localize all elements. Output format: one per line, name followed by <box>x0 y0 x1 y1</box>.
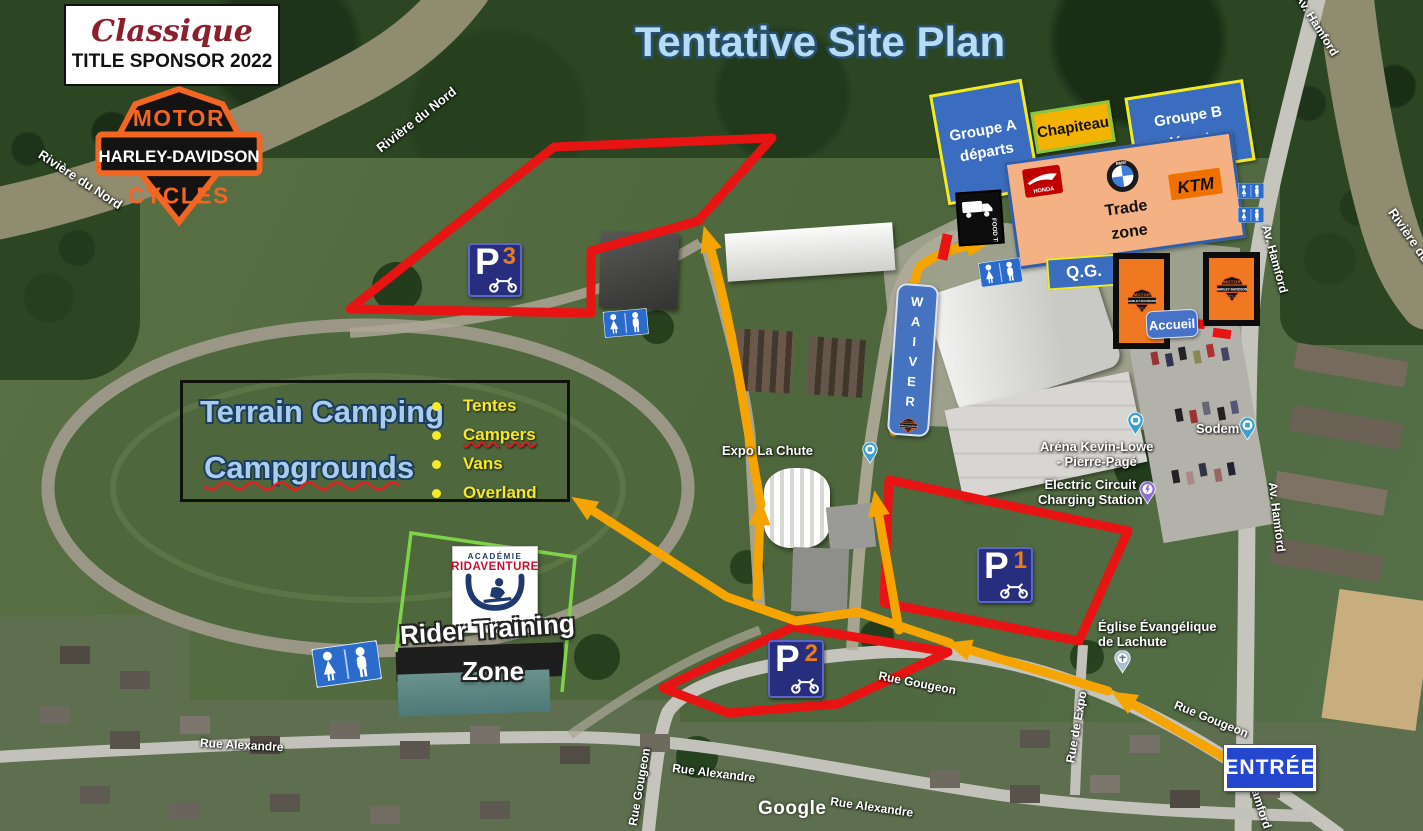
camping-title-en: Campgrounds <box>204 450 414 485</box>
waiver-label: WAIVER <box>903 294 924 415</box>
bullet-icon <box>432 431 441 440</box>
parking-number: 2 <box>805 640 818 668</box>
motorcycle-icon <box>999 582 1029 599</box>
poi-text: de Lachute <box>1098 634 1167 649</box>
food-truck-text: FOOD TRUCK <box>990 218 1000 245</box>
poi-eglise: Église Évangélique de Lachute <box>1098 620 1217 650</box>
parking-number: 3 <box>503 243 516 271</box>
site-plan-map: MOTOR HARLEY-DAVIDSON CYCLES <box>0 0 1423 831</box>
poi-sodem: Sodem <box>1196 422 1239 437</box>
church-map-pin-icon <box>1114 650 1131 674</box>
camping-items-list: Tentes Campers Vans Overland <box>432 396 537 503</box>
parking-letter: P <box>775 638 800 680</box>
bmw-logo: BMW <box>1103 157 1141 195</box>
camping-item: Campers <box>463 425 536 445</box>
restrooms-icon <box>311 640 383 694</box>
harley-davidson-logo-small <box>895 417 922 435</box>
poi-text: Electric Circuit <box>1044 477 1136 492</box>
parking-letter: P <box>984 545 1009 587</box>
academy-top-text: ACADÉMIE <box>468 552 523 561</box>
sponsor-label: TITLE SPONSOR 2022 <box>72 51 273 73</box>
zone-label: Trade <box>1104 197 1149 220</box>
ev-charging-pin-icon <box>1139 481 1156 505</box>
bullet-icon <box>432 402 441 411</box>
bullet-icon <box>432 489 441 498</box>
zone-label: zone <box>1110 221 1148 243</box>
zone-label: Accueil <box>1149 315 1196 332</box>
food-truck-icon: FOOD TRUCK <box>955 189 1005 246</box>
restrooms-icon <box>978 257 1024 293</box>
google-watermark: Google <box>758 798 826 820</box>
sodem-map-pin-icon <box>1239 417 1256 441</box>
restrooms-icon <box>1238 180 1264 226</box>
page-title-text: Tentative Site Plan <box>635 18 1005 65</box>
poi-charging-station: Electric Circuit Charging Station <box>1038 478 1143 508</box>
poi-text: Sodem <box>1196 421 1239 436</box>
poi-arena: Aréna Kevin-Lowe - Pierre-Pagé <box>1040 440 1153 470</box>
parking-sign-p1: P 1 <box>977 547 1033 603</box>
p3-zone-outline <box>350 138 772 313</box>
entrance-label: ENTRÉE <box>1224 756 1315 780</box>
page-title: Tentative Site Plan <box>540 10 1100 74</box>
arena-map-pin-icon <box>1127 412 1144 436</box>
zone-label: Q.G. <box>1065 261 1102 283</box>
motorcycle-icon <box>790 677 820 694</box>
camping-title-fr: Terrain Camping <box>200 394 444 429</box>
sponsor-brand: Classique <box>91 17 253 47</box>
zone-label: Chapiteau <box>1036 113 1110 141</box>
harley-davidson-logo <box>95 84 263 227</box>
title-sponsor-box: Classique TITLE SPONSOR 2022 <box>64 4 280 86</box>
honda-logo: HONDA <box>1022 164 1064 199</box>
expo-map-pin-icon <box>862 442 878 464</box>
zone-accueil: Accueil <box>1145 309 1198 340</box>
poi-text: Église Évangélique <box>1098 619 1217 634</box>
poi-text: - Pierre-Pagé <box>1057 454 1137 469</box>
parking-sign-p3: P 3 <box>468 243 522 297</box>
camping-item: Tentes <box>463 396 517 416</box>
rider-zone-label-line2: Zone <box>462 656 524 687</box>
motorcycle-icon <box>488 276 518 293</box>
poi-expo-la-chute: Expo La Chute <box>722 444 813 459</box>
zone-qg: Q.G. <box>1046 253 1122 290</box>
poi-text: Expo La Chute <box>722 443 813 458</box>
bullet-icon <box>432 460 441 469</box>
rider-graphic <box>462 573 528 613</box>
poi-text: Charging Station <box>1038 492 1143 507</box>
restrooms-icon <box>603 308 650 343</box>
entrance-sign: ENTRÉE <box>1224 745 1316 791</box>
hd-vendor-booth <box>1203 252 1260 326</box>
parking-number: 1 <box>1014 547 1027 575</box>
camping-item: Overland <box>463 483 537 503</box>
poi-text: Aréna Kevin-Lowe <box>1040 439 1153 454</box>
parking-sign-p2: P 2 <box>768 640 824 698</box>
academy-name-text: RIDAVENTURE <box>451 561 539 573</box>
camping-item: Vans <box>463 454 503 474</box>
